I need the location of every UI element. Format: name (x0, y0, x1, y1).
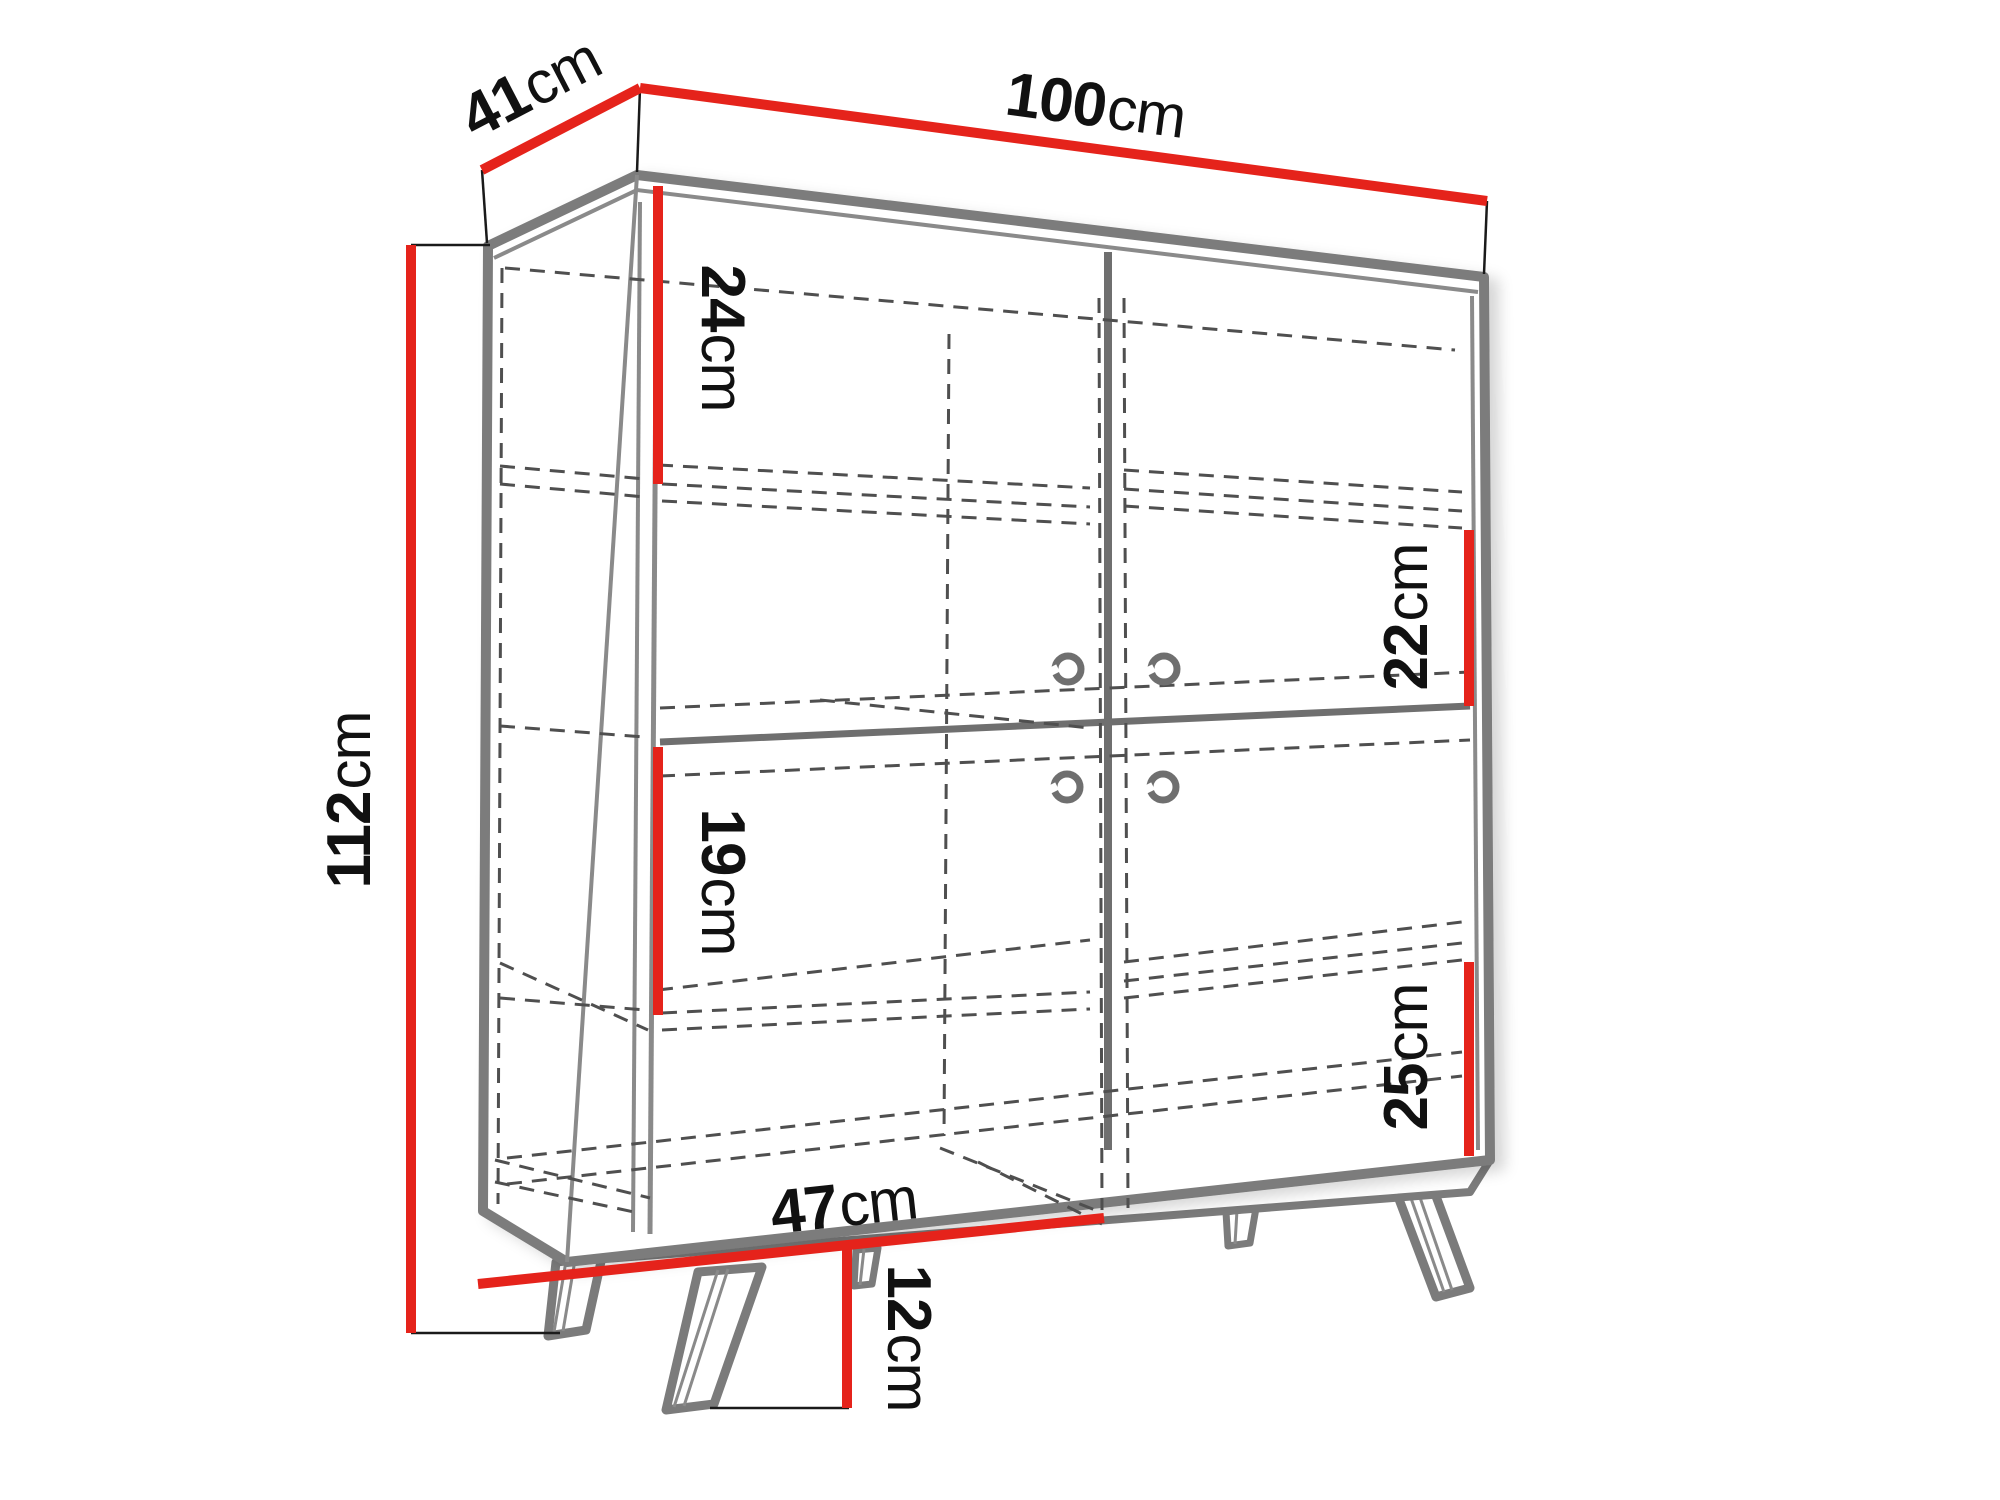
middle-left-label: 19cm (688, 809, 757, 956)
height-label: 112cm (315, 711, 384, 888)
furniture-dimension-diagram: 41cm 100cm 112cm 24cm 22cm 19cm 25cm 47c… (0, 0, 2000, 1500)
upper-right-label: 22cm (1372, 544, 1441, 691)
leg-height-label: 12cm (874, 1265, 943, 1412)
lower-right-label: 25cm (1372, 984, 1441, 1131)
top-section-label: 24cm (688, 265, 757, 412)
depth-label: 41cm (449, 23, 611, 152)
cabinet-diagram-canvas: 41cm 100cm 112cm 24cm 22cm 19cm 25cm 47c… (0, 0, 2000, 1500)
